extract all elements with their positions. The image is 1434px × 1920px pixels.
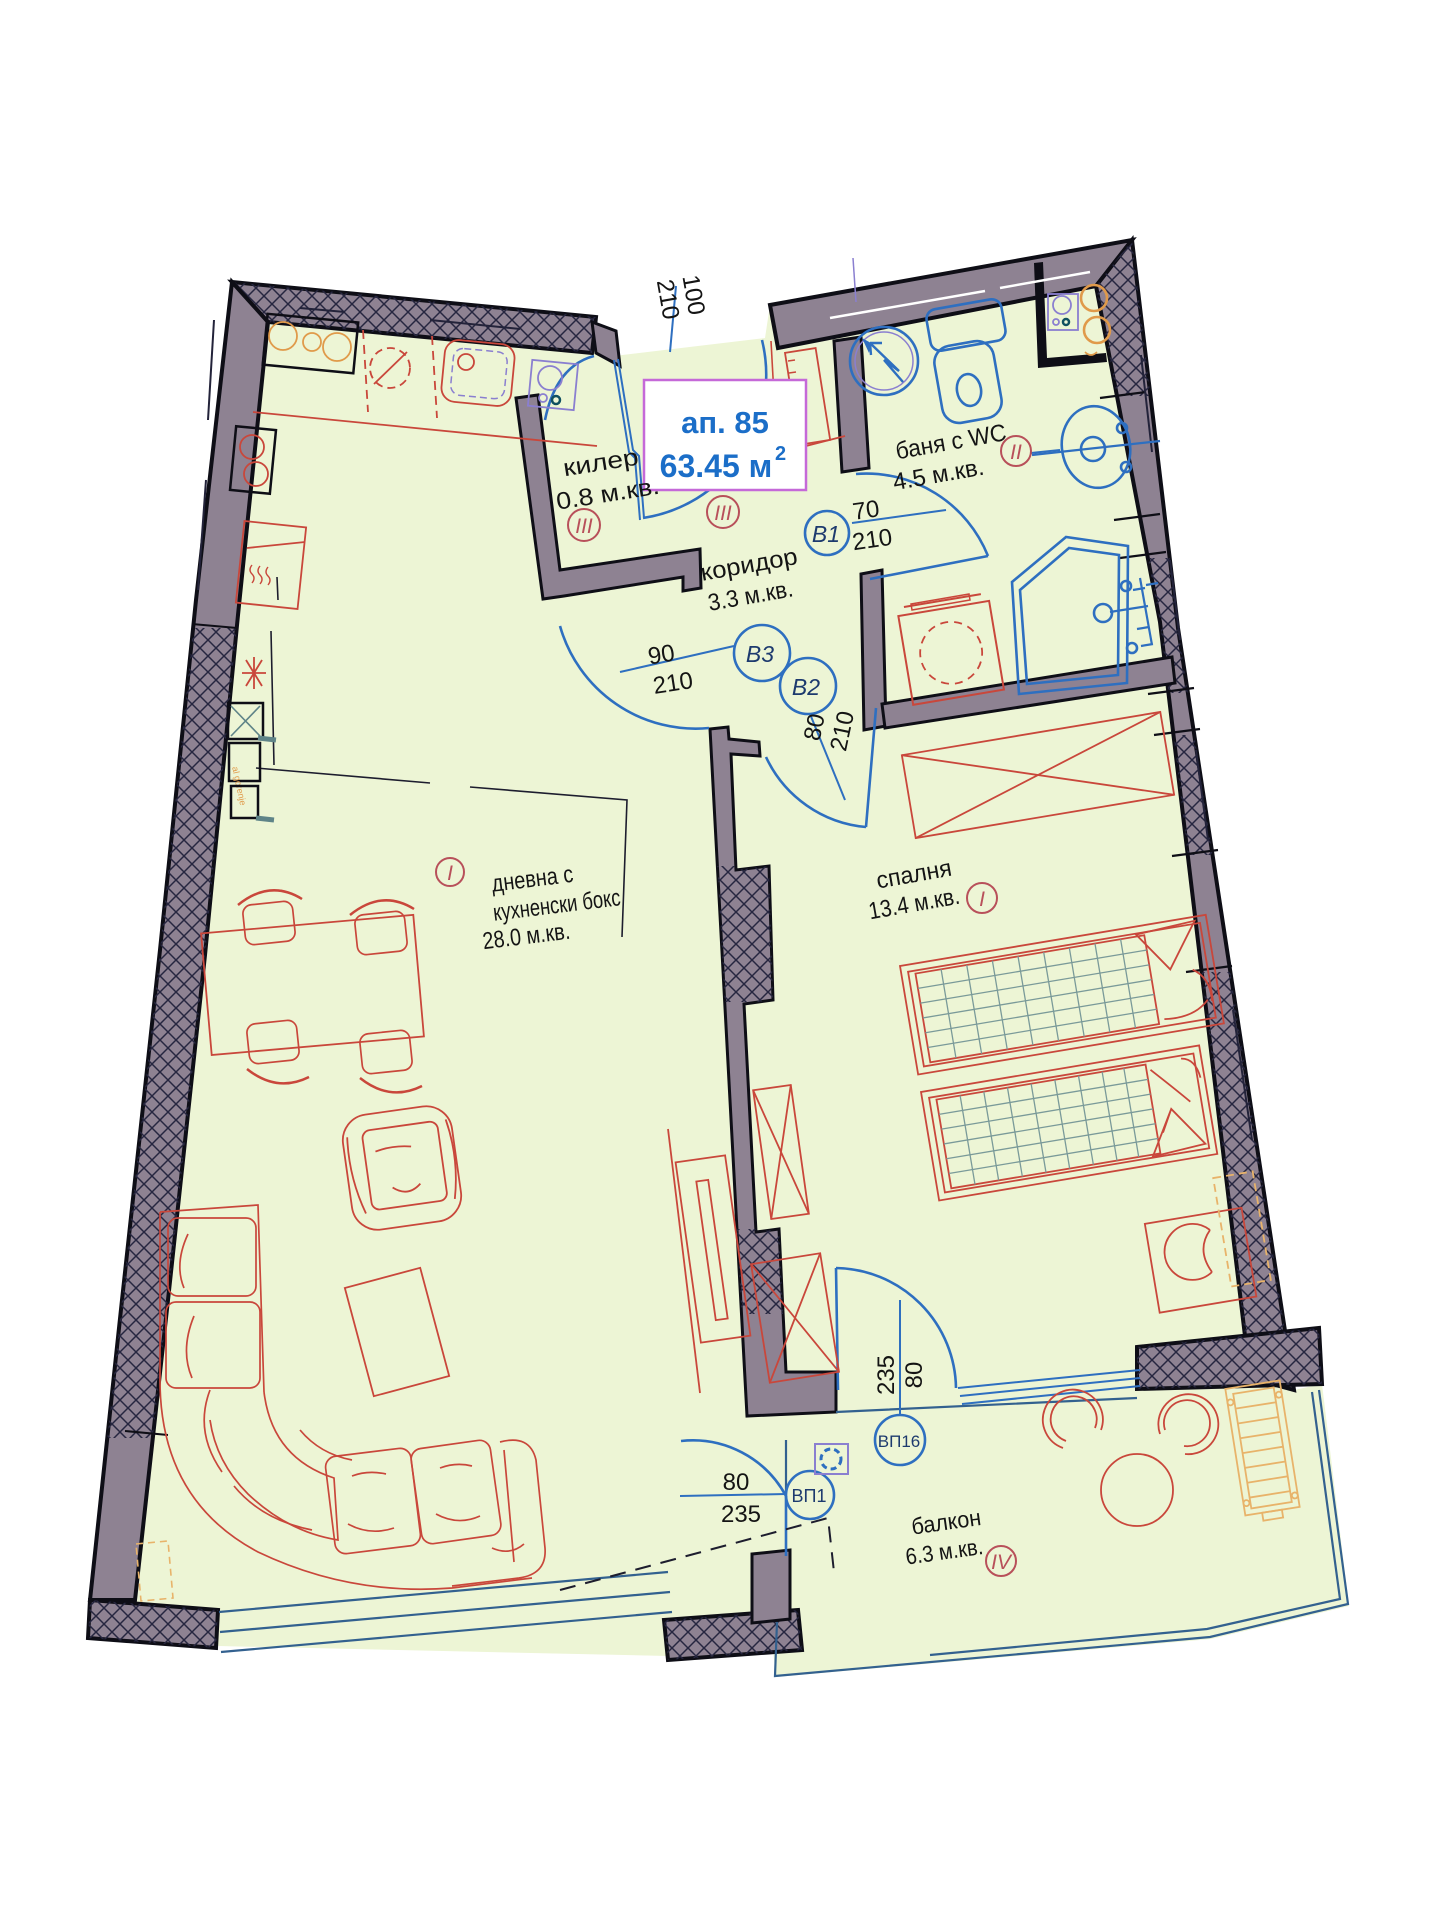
svg-text:210: 210: [851, 524, 894, 556]
svg-text:235: 235: [721, 1501, 761, 1528]
svg-text:80: 80: [901, 1362, 928, 1389]
svg-text:2: 2: [775, 443, 786, 465]
svg-text:80: 80: [799, 711, 831, 743]
svg-text:70: 70: [851, 495, 881, 525]
svg-text:B1: B1: [812, 521, 840, 547]
svg-text:80: 80: [723, 1469, 750, 1496]
svg-text:B2: B2: [792, 674, 820, 700]
svg-text:235: 235: [873, 1355, 900, 1395]
svg-text:63.45 м: 63.45 м: [660, 448, 773, 484]
svg-text:ВП1: ВП1: [792, 1486, 827, 1506]
svg-text:I: I: [447, 862, 453, 885]
svg-text:III: III: [575, 515, 593, 538]
svg-text:III: III: [714, 502, 732, 525]
svg-text:II: II: [1010, 441, 1022, 464]
svg-text:ап. 85: ап. 85: [681, 405, 769, 440]
svg-text:B3: B3: [746, 641, 774, 667]
svg-text:90: 90: [646, 640, 677, 671]
svg-text:ВП16: ВП16: [878, 1432, 920, 1451]
svg-text:IV: IV: [991, 1551, 1013, 1574]
svg-text:I: I: [979, 888, 985, 911]
